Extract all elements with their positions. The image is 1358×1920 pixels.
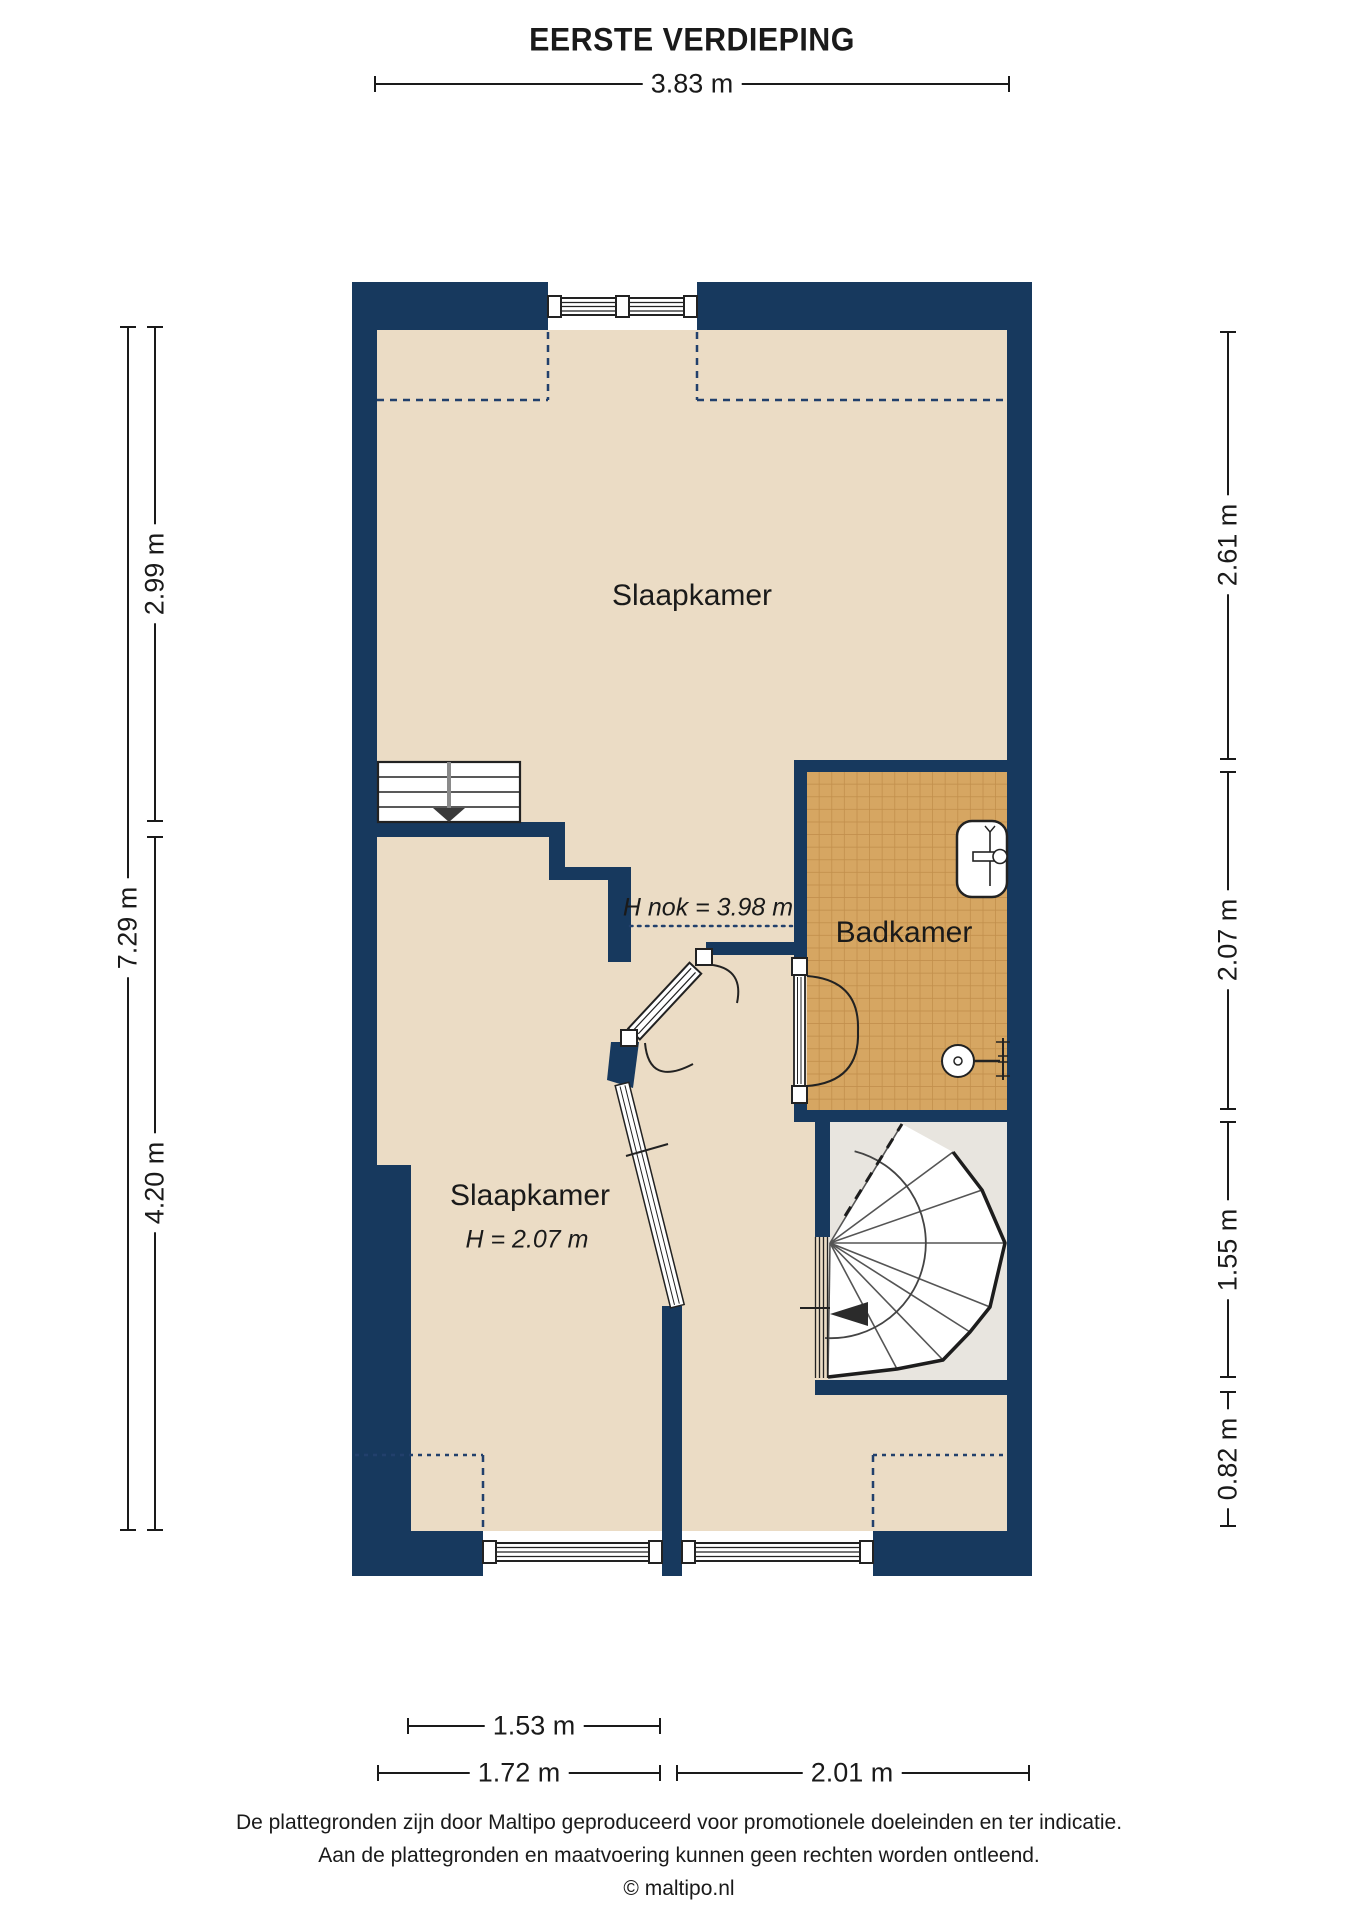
dimension-left-total: 7.29 m [113,879,144,978]
room-label-bedroom-top: Slaapkamer [612,579,772,613]
dimension-right-seg1: 2.61 m [1213,496,1244,595]
toilet-icon [957,821,1007,897]
room-label-bathroom: Badkamer [836,916,973,950]
disclaimer-line1: De plattegronden zijn door Maltipo gepro… [0,1806,1358,1839]
dimension-right-seg2: 2.07 m [1213,891,1244,990]
window-icon [682,1531,873,1576]
copyright: © maltipo.nl [0,1872,1358,1905]
straight-stairs-icon [378,762,520,822]
dimension-left-upper: 2.99 m [140,525,171,624]
disclaimer: De plattegronden zijn door Maltipo gepro… [0,1806,1358,1905]
ridge-height-note: H nok = 3.98 m [623,894,793,923]
floorplan-page: EERSTE VERDIEPING 3.83 m 7.29 m 2.99 m 4… [0,0,1358,1920]
window-icon [483,1531,662,1576]
room-label-bedroom-bottom: Slaapkamer [450,1179,610,1213]
dimension-bottom-left: 1.72 m [470,1758,569,1789]
dimension-right-seg4: 0.82 m [1213,1410,1244,1509]
disclaimer-line2: Aan de plattegronden en maatvoering kunn… [0,1839,1358,1872]
dimension-left-lower: 4.20 m [140,1134,171,1233]
dimension-bottom-right: 2.01 m [803,1758,902,1789]
dimension-right-seg3: 1.55 m [1213,1201,1244,1300]
room-height-note: H = 2.07 m [466,1226,589,1255]
dimension-top-width: 3.83 m [643,69,742,100]
floorplan-drawing [0,0,1358,1920]
dimension-bottom-inner: 1.53 m [485,1711,584,1742]
window-icon [548,282,697,330]
page-title: EERSTE VERDIEPING [529,22,855,59]
